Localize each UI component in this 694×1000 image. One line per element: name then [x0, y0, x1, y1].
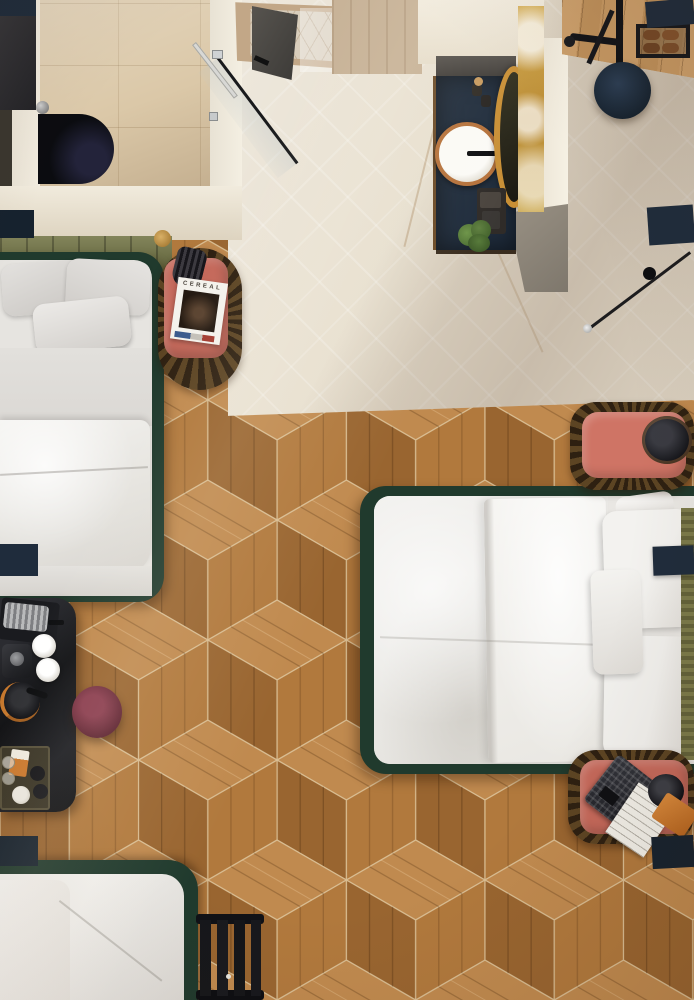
amenity-box-icon — [480, 192, 501, 208]
vanity-bottle-icon — [481, 95, 491, 107]
wall-cap-navy — [645, 0, 694, 28]
tub-faucet — [36, 101, 49, 114]
wood-wall-panel — [332, 0, 422, 74]
floor-lamp-joint-icon — [643, 267, 656, 280]
floor-lamp-tip-icon — [583, 324, 592, 333]
saucer-icon — [12, 786, 30, 804]
wall-cap-navy — [0, 544, 38, 576]
black-cup-icon — [30, 766, 45, 781]
bedroom-top-wall — [0, 186, 242, 240]
rack-slat — [217, 920, 228, 996]
adjacent-room-counter — [0, 12, 36, 110]
table-lamp-brass-icon — [154, 230, 171, 247]
shoe-icon — [643, 43, 660, 53]
coffee-machine-top — [3, 602, 49, 632]
espresso-cup — [32, 634, 56, 658]
stool-burgundy — [72, 686, 122, 738]
rack-dot-icon — [226, 974, 231, 979]
rack-slat — [234, 920, 245, 996]
wall-cap-navy — [0, 836, 38, 866]
shoe-shelf — [636, 24, 690, 58]
sofa-bed-sheet-fold — [0, 880, 70, 1000]
bed1-sheet — [0, 348, 152, 426]
shoe-icon — [643, 30, 660, 40]
rack-slat — [251, 920, 261, 996]
gold-marble-strip — [518, 6, 544, 212]
door-hinge-icon — [209, 112, 218, 121]
bed-tray-navy — [653, 545, 694, 575]
luggage-rack — [196, 914, 264, 1000]
left-wall-sliver — [0, 110, 12, 188]
shoe-icon — [662, 30, 679, 40]
glass-icon — [2, 756, 15, 769]
rack-slat — [200, 920, 211, 996]
coat-rack-knob-icon — [564, 36, 575, 47]
wall-cap-navy — [0, 0, 36, 16]
portafilter-icon — [48, 620, 64, 625]
magazine-cereal: CEREAL — [170, 277, 228, 345]
pillow-small — [590, 569, 644, 675]
pillow — [32, 295, 133, 355]
wall-cap-navy — [0, 210, 34, 238]
black-cup-icon — [33, 784, 48, 799]
espresso-cup — [36, 658, 60, 682]
wall-cap-navy — [651, 835, 694, 869]
shower-dark-panel — [252, 6, 298, 80]
magazine-photo — [179, 290, 220, 333]
moka-cap-icon — [10, 652, 24, 666]
door-hinge-icon — [212, 50, 223, 59]
plant — [458, 220, 496, 254]
hotel-room-topdown-render: CEREAL — [0, 0, 694, 1000]
plant-leaves — [468, 234, 490, 252]
ottoman-navy — [594, 62, 651, 119]
glass-icon — [2, 772, 15, 785]
black-bathtub — [38, 114, 114, 184]
shoe-icon — [662, 43, 679, 53]
bedside-lamp — [642, 416, 692, 464]
wall-cap-navy — [647, 204, 694, 245]
bottle-cork-icon — [474, 77, 483, 86]
